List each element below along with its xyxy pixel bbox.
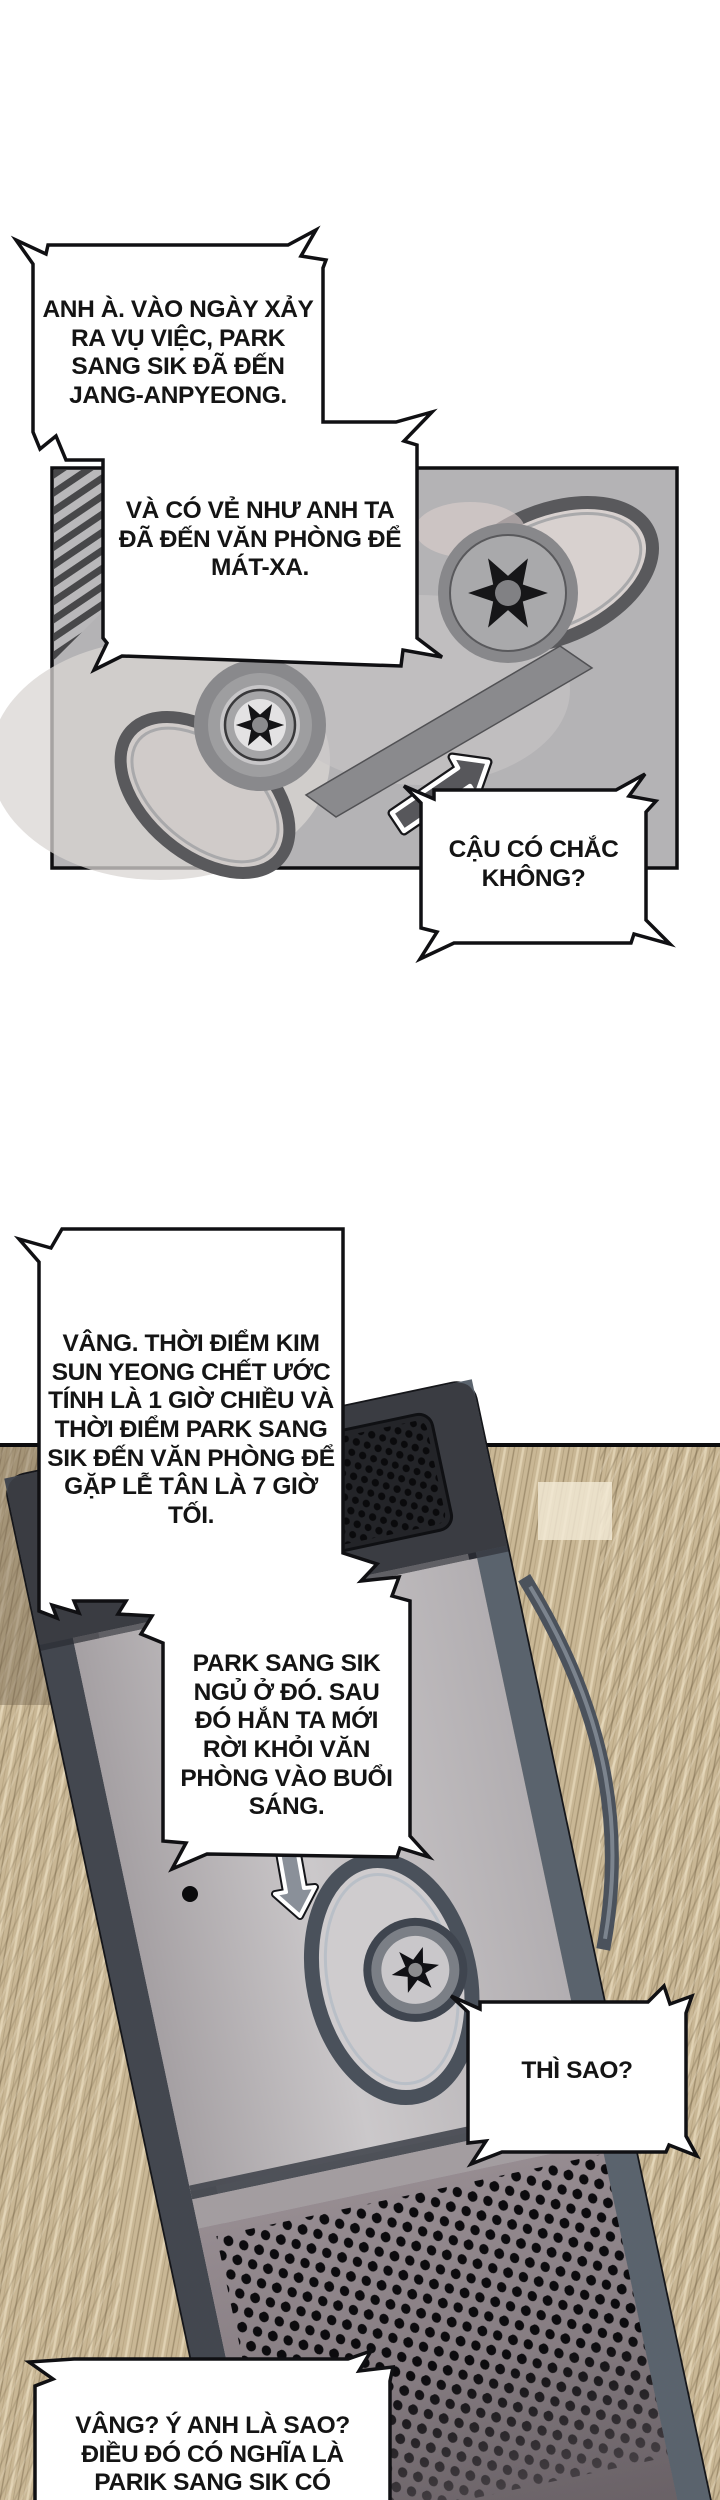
cassette-reel-right (438, 523, 578, 663)
speech-bubble-7-text: VÂNG? Ý ANH LÀ SAO? ĐIỀU ĐÓ CÓ NGHĨA LÀ … (35, 2412, 390, 2498)
comic-page: ANH À. VÀO NGÀY XẢY RA VỤ VIỆC, PARK SAN… (0, 0, 720, 2500)
cassette-reel-left (194, 659, 326, 791)
screw-hole (182, 1886, 198, 1902)
speech-bubble-2-text: VÀ CÓ VẺ NHƯ ANH TA ĐÃ ĐẾN VĂN PHÒNG ĐỂ … (103, 497, 417, 583)
floor-highlight (538, 1482, 612, 1540)
speech-bubble-3-text: CẬU CÓ CHẮC KHÔNG? (421, 836, 646, 893)
speech-bubble-5-text: PARK SANG SIK NGỦ Ở ĐÓ. SAU ĐÓ HẮN TA MỚ… (163, 1650, 410, 1822)
speech-bubble-4-text: VÂNG. THỜI ĐIỂM KIM SUN YEONG CHẾT ƯỚC T… (39, 1330, 343, 1531)
speech-bubble-6-text: THÌ SAO? (468, 2057, 686, 2086)
speech-bubble-1-text: ANH À. VÀO NGÀY XẢY RA VỤ VIỆC, PARK SAN… (33, 296, 323, 411)
